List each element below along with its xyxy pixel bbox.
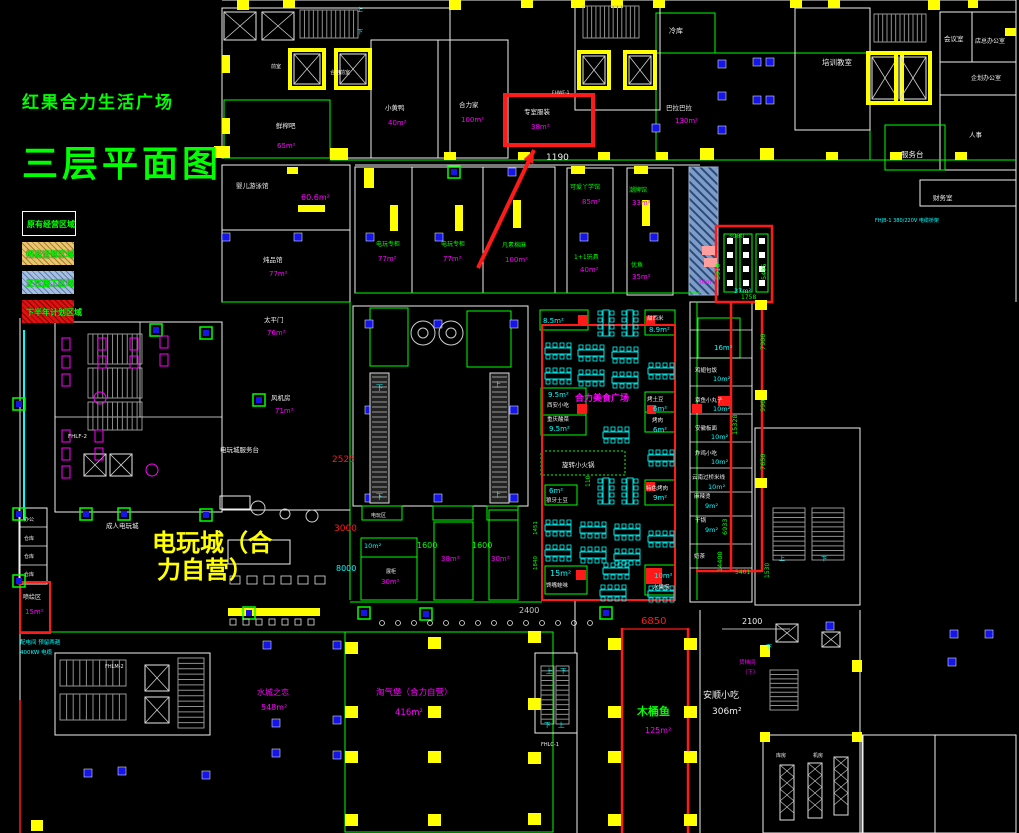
plan-label: 淘气堡（合力自营） <box>376 687 453 698</box>
plan-label: 40m² <box>580 266 599 274</box>
plan-label: 店总办公室 <box>975 37 1005 45</box>
plan-label: FHLC-1 <box>541 742 559 748</box>
column-marker <box>333 716 341 724</box>
plan-label: 2525 <box>332 455 355 465</box>
column-block <box>608 638 621 650</box>
column-block <box>521 0 533 8</box>
column-marker <box>435 233 443 241</box>
plan-label: 培训教室 <box>822 57 852 67</box>
plan-label: 财务室 <box>933 193 953 202</box>
plan-label: 会议室 <box>944 34 964 43</box>
plan-label: 下 <box>376 493 383 501</box>
plan-label: 炖品馆 <box>263 255 283 264</box>
plan-label: 下 <box>357 29 363 36</box>
plan-label: 6850 <box>641 616 666 627</box>
column-marker <box>766 96 774 104</box>
column-marker <box>950 630 958 638</box>
plan-label: 馋嘴蛙味 <box>546 581 569 589</box>
plan-label: 下 <box>766 644 772 651</box>
furniture-pink <box>702 246 715 255</box>
plan-label: 1600 <box>472 541 492 550</box>
legend-label: 原有经营区域 <box>27 219 75 230</box>
plan-label: 仓库 <box>24 553 34 560</box>
column-marker <box>434 494 442 502</box>
plan-label: 9m² <box>653 494 667 502</box>
column-marker <box>826 622 834 630</box>
plan-label: 上 <box>558 720 565 729</box>
column-block <box>828 0 840 8</box>
plan-label: 1190 <box>546 153 569 163</box>
plan-label: FHJB-1 380/220V 电缆桥架 <box>875 217 939 224</box>
column-marker <box>272 719 280 727</box>
column-block <box>455 205 463 231</box>
plan-label: 1451 <box>533 521 539 535</box>
plan-label: 服务台 <box>901 149 924 159</box>
legend-item-leased: 招商运营区域 <box>22 242 74 265</box>
column-block <box>755 390 767 400</box>
plan-label: 36m² <box>698 279 714 286</box>
column-marker <box>366 233 374 241</box>
column-block <box>684 751 697 763</box>
plan-label: 9m² <box>705 526 718 534</box>
plan-label: 小黄鸭 <box>385 103 405 112</box>
plan-label: 电玩城服务台 <box>220 445 259 454</box>
plan-label: 1530 <box>764 563 771 578</box>
plan-label: 110 <box>585 475 592 487</box>
column-marker <box>753 58 761 66</box>
plan-label: 3000 <box>334 524 357 534</box>
plan-label: 5401 <box>735 569 750 576</box>
plan-label: 货梯间 <box>739 658 756 666</box>
plan-label: 太平门 <box>264 315 284 324</box>
stall-seat <box>743 280 749 286</box>
legend-label: 招商运营区域 <box>26 249 74 260</box>
plan-label: 15m² <box>25 608 44 616</box>
column-block <box>428 751 441 763</box>
plan-label: 8000 <box>336 564 356 573</box>
grid-marker-core <box>246 610 252 616</box>
plan-label: 40m² <box>388 119 407 127</box>
column-block <box>826 152 838 160</box>
plan-label: 喷绘区 <box>23 593 41 601</box>
plan-label: 潮牌馆 <box>629 186 647 194</box>
column-marker <box>84 769 92 777</box>
column-marker <box>652 124 660 132</box>
legend-item-planned: 下半年计划区域 <box>22 300 74 323</box>
plan-label: 仓库 <box>24 535 34 542</box>
column-block <box>852 732 862 742</box>
grid-marker-core <box>203 330 209 336</box>
plan-label: 9.5m² <box>549 425 570 433</box>
column-block <box>1005 28 1016 36</box>
plan-label: FHLM-2 <box>105 664 124 670</box>
drawing-title: 三层平面图 <box>22 135 222 187</box>
plan-label: 前室 <box>271 63 281 70</box>
column-block <box>598 152 610 160</box>
column-block <box>228 608 320 616</box>
plan-label: 水果捞 <box>653 583 670 591</box>
column-marker <box>508 168 516 176</box>
plan-label: 冷库 <box>669 26 683 35</box>
plan-label: 15m² <box>550 569 571 578</box>
plan-label: 下 <box>376 384 383 392</box>
cad-viewport[interactable]: 前室合用前室上下鲜榨吧65m²小黄鸭40m²合力家100m²专室服装38m²FH… <box>0 0 1019 833</box>
plan-label: 100m² <box>461 116 484 124</box>
plan-label: 8.9m² <box>649 326 670 334</box>
red-marker <box>577 404 587 414</box>
plan-label: 重庆酸菜 <box>547 415 570 423</box>
legend-label: 下半年计划区域 <box>26 307 82 318</box>
plan-label: 上 <box>494 380 501 389</box>
legend-item-existing: 原有经营区域 <box>22 211 76 236</box>
plan-label: 上 <box>779 555 785 563</box>
plan-label: 风机房 <box>271 393 291 402</box>
column-block <box>390 205 398 231</box>
column-marker <box>718 126 726 134</box>
red-marker <box>578 315 588 325</box>
plan-label: 1758 <box>741 294 756 301</box>
column-marker <box>222 233 230 241</box>
plan-label: 云南过桥米线 <box>692 473 726 481</box>
plan-label: 仓库 <box>24 571 34 578</box>
plan-label: 1840 <box>533 556 539 570</box>
plan-label: 电玩城（合 <box>152 529 273 557</box>
column-marker <box>718 92 726 100</box>
plan-label: 西安小吃 <box>547 401 570 409</box>
plan-label: 力自营） <box>157 556 253 584</box>
plan-label: 2100 <box>742 617 762 626</box>
grid-marker-core <box>83 511 89 517</box>
stall-seat <box>743 266 749 272</box>
column-block <box>287 167 298 174</box>
column-block <box>428 637 441 649</box>
plan-label: 上 <box>357 6 363 14</box>
column-block <box>755 478 767 488</box>
column-block <box>528 752 541 764</box>
plan-label: 1+1玩具 <box>574 254 599 261</box>
column-block <box>528 813 541 825</box>
plan-label: 凡素棉麻 <box>502 241 526 249</box>
plan-label: 配电间 预留两趟 <box>20 638 61 646</box>
plan-label: 306m² <box>712 707 742 717</box>
plan-label: 人事 <box>969 130 983 139</box>
column-block <box>345 706 358 718</box>
column-block <box>345 751 358 763</box>
plan-label: 炸鸡小吃 <box>695 449 718 457</box>
plan-label: 10m² <box>713 405 731 413</box>
column-block <box>928 0 940 10</box>
plan-label: 章鱼小丸子 <box>695 396 723 404</box>
plan-label: 电玩区 <box>371 512 386 519</box>
plan-label: 10m² <box>364 542 382 550</box>
column-marker <box>510 320 518 328</box>
plan-label: 5910 <box>714 263 722 280</box>
column-block <box>31 820 43 831</box>
plan-label: 可爱丫学馆 <box>570 183 600 191</box>
plan-label: 3080 <box>728 232 745 240</box>
plan-label: 30m² <box>491 555 510 563</box>
column-marker <box>985 630 993 638</box>
plan-label: 77m² <box>269 270 288 278</box>
plan-label: 干锅 <box>695 516 707 524</box>
plan-label: 400KW 电缆 <box>20 648 53 656</box>
grid-marker-core <box>423 611 429 617</box>
plan-label: 机房 <box>813 752 823 759</box>
grid-marker-core <box>16 578 22 584</box>
plan-label: 60.6m² <box>301 193 330 202</box>
column-block <box>755 300 767 310</box>
column-marker <box>333 751 341 759</box>
column-block <box>760 148 774 160</box>
column-marker <box>650 233 658 241</box>
plan-label: 婴儿游泳馆 <box>236 181 269 190</box>
plan-label: 展柜 <box>386 568 396 575</box>
plan-label: 奶茶 <box>694 552 706 560</box>
plan-label: 85m² <box>582 198 601 206</box>
column-block <box>528 698 541 710</box>
column-block <box>653 0 665 8</box>
column-block <box>955 152 967 160</box>
plan-label: 鲜榨吧 <box>276 121 296 130</box>
column-marker <box>766 58 774 66</box>
column-marker <box>718 60 726 68</box>
plan-label: 6m² <box>653 405 667 413</box>
column-marker <box>510 494 518 502</box>
plan-label: 甜西米 <box>647 314 664 322</box>
plan-label: 130m² <box>675 117 698 125</box>
column-marker <box>365 320 373 328</box>
column-block <box>513 200 521 228</box>
plan-label: 71m² <box>275 407 294 415</box>
column-block <box>684 706 697 718</box>
column-block <box>428 706 441 718</box>
grid-marker-core <box>16 401 22 407</box>
column-block <box>968 0 978 8</box>
stall-seat <box>727 252 733 258</box>
plan-label: 特色烤肉 <box>646 484 668 492</box>
plan-label: 专室服装 <box>524 107 551 116</box>
column-block <box>345 814 358 826</box>
plan-label: 33m² <box>632 199 651 207</box>
stall-seat <box>759 238 765 244</box>
column-block <box>608 814 621 826</box>
plan-label: 电玩专柜 <box>441 240 465 248</box>
column-block <box>237 0 249 10</box>
plan-label: 10m² <box>711 433 729 441</box>
plan-label: 10m² <box>711 458 729 466</box>
title-block: 红果合力生活广场 三层平面图 原有经营区域 招商运营区域 正在施工区域 下半年计… <box>22 88 222 329</box>
plan-label: 10m² <box>708 483 726 491</box>
plan-label: 15328 <box>731 414 739 435</box>
column-block <box>364 168 374 188</box>
plan-label: 烤肉 <box>652 416 663 424</box>
plan-label: 水城之恋 <box>257 687 289 697</box>
plan-label: 38m² <box>441 555 460 563</box>
plan-label: 16m² <box>714 344 733 352</box>
plan-label: 6933 <box>721 518 729 535</box>
plan-label: 下 <box>821 556 827 563</box>
column-block <box>428 814 441 826</box>
column-marker <box>202 771 210 779</box>
stall-seat <box>759 252 765 258</box>
column-block <box>634 166 648 174</box>
column-block <box>684 814 697 826</box>
grid-marker-core <box>361 610 367 616</box>
column-marker <box>333 641 341 649</box>
grid-marker-core <box>121 511 127 517</box>
plan-label: 6m² <box>549 487 563 495</box>
plan-label: 77m² <box>443 255 462 263</box>
plan-label: 麻辣烫 <box>694 492 711 500</box>
plan-label: 下 <box>560 667 567 675</box>
plan-label: 6m² <box>653 426 667 434</box>
plan-label: 合力美食广场 <box>575 392 629 404</box>
column-block <box>330 148 348 160</box>
grid-marker-core <box>16 511 22 517</box>
plan-label: 狼牙土豆 <box>546 496 569 504</box>
column-block <box>528 631 541 643</box>
plan-label: 35m² <box>632 273 651 281</box>
legend: 原有经营区域 招商运营区域 正在施工区域 下半年计划区域 <box>22 211 222 323</box>
plan-label: 100m² <box>505 256 528 264</box>
grid-marker-core <box>603 610 609 616</box>
plan-label: 合力家 <box>459 100 479 109</box>
plaza-name: 红果合力生活广场 <box>22 88 222 113</box>
plan-label: 库房 <box>776 752 786 759</box>
plan-label: 优鱼 <box>631 261 643 269</box>
plan-label: 30m² <box>381 578 400 586</box>
plan-label: 木桶鱼 <box>636 704 670 718</box>
grid-marker-core <box>203 512 209 518</box>
column-block <box>790 0 802 8</box>
plan-label: 1600 <box>417 541 437 550</box>
column-block <box>222 55 230 73</box>
plan-label: 办公 <box>24 516 34 523</box>
column-block <box>222 118 230 134</box>
plan-label: 9.5m² <box>548 391 569 399</box>
column-block <box>449 0 461 10</box>
red-marker <box>692 404 702 413</box>
legend-item-construction: 正在施工区域 <box>22 271 74 294</box>
plan-label: 电玩专柜 <box>376 240 400 248</box>
plan-label: 下 <box>544 721 551 729</box>
plan-label: 7900 <box>759 333 767 350</box>
column-block <box>684 638 697 650</box>
grid-marker-core <box>256 397 262 403</box>
column-marker <box>263 641 271 649</box>
plan-label: 安顺小吃 <box>703 689 739 701</box>
plan-label: 8.5m² <box>543 317 564 325</box>
plan-label: 77m² <box>378 255 397 263</box>
plan-label: 548m² <box>261 703 287 712</box>
plan-label: 38m² <box>531 123 550 131</box>
column-block <box>571 166 585 174</box>
column-marker <box>118 767 126 775</box>
plan-label: 10m² <box>654 572 673 580</box>
stall-seat <box>727 266 733 272</box>
column-marker <box>580 233 588 241</box>
red-marker <box>576 570 586 580</box>
plan-label: 10m² <box>713 375 731 383</box>
plan-label: 416m² <box>395 708 423 718</box>
column-marker <box>753 96 761 104</box>
plan-label: 5495 <box>760 263 768 280</box>
plan-label: 企划办公室 <box>971 74 1001 82</box>
plan-label: 9m² <box>705 502 718 510</box>
plan-label: 125m² <box>645 726 671 735</box>
plan-label: 上 <box>546 666 553 675</box>
column-block <box>298 205 325 212</box>
column-block <box>608 751 621 763</box>
plan-label: 76m² <box>267 329 286 337</box>
stall-seat <box>743 252 749 258</box>
column-block <box>852 660 862 672</box>
column-block <box>345 642 358 654</box>
plan-label: 合用前室 <box>330 69 350 76</box>
column-marker <box>510 406 518 414</box>
plan-label: （下） <box>742 669 759 676</box>
plan-label: 烤土豆 <box>647 395 664 403</box>
column-block <box>283 0 295 8</box>
plan-label: 14400 <box>716 551 724 572</box>
grid-marker-core <box>451 169 457 175</box>
column-block <box>444 152 456 160</box>
plan-label: 鸡翅包饭 <box>695 366 718 374</box>
plan-label: 65m² <box>277 142 296 150</box>
column-block <box>760 732 770 742</box>
column-marker <box>294 233 302 241</box>
column-block <box>700 148 714 160</box>
plan-label: 2400 <box>519 606 539 615</box>
plan-label: 7650 <box>759 453 767 470</box>
plan-label: 990 <box>759 400 767 412</box>
column-block <box>656 152 668 160</box>
plan-label: FHLF-2 <box>68 434 87 440</box>
legend-label: 正在施工区域 <box>26 278 74 289</box>
plan-label: 巴拉巴拉 <box>666 103 693 112</box>
column-block <box>608 706 621 718</box>
plan-label: 安徽板面 <box>695 424 718 432</box>
plan-label: 旋转小火锅 <box>562 460 595 469</box>
plan-label: 上 <box>494 490 501 499</box>
column-marker <box>272 749 280 757</box>
stall-seat <box>727 280 733 286</box>
plan-label: FHWF-1 <box>552 90 570 96</box>
plan-label: 成人电玩城 <box>106 521 139 530</box>
column-marker <box>948 658 956 666</box>
